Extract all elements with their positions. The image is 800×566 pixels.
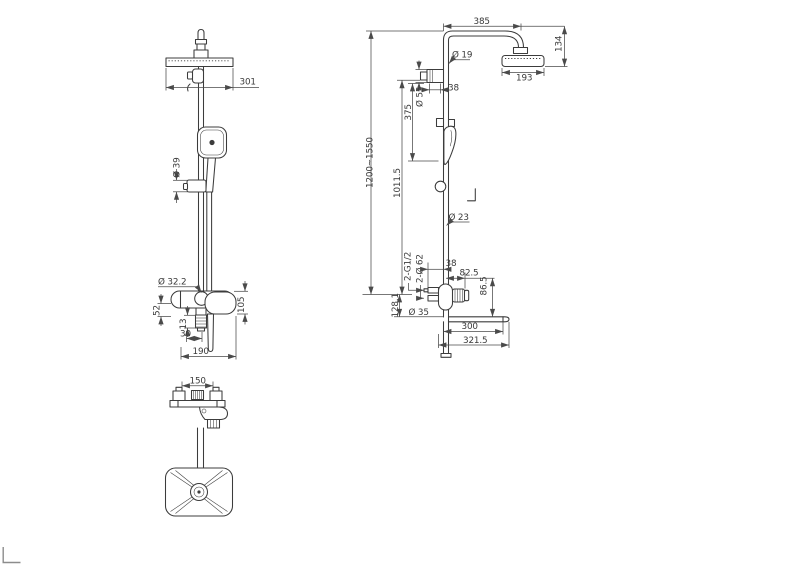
dim-label-385: 385 bbox=[474, 17, 490, 27]
dim-label-30: 30 bbox=[180, 330, 191, 340]
dim-label-13: 13 bbox=[179, 319, 189, 330]
dim-label-dia19: Ø 19 bbox=[452, 50, 472, 61]
dim-label-dia39: Ø 39 bbox=[172, 157, 183, 177]
corner-mark bbox=[468, 189, 476, 201]
dim-label-2dia62: 2-Ø 62 bbox=[415, 254, 426, 283]
dim-pipe-dia-19: Ø 19 bbox=[449, 50, 472, 64]
dim-label-150: 150 bbox=[190, 377, 207, 387]
overhead-shower-front bbox=[166, 58, 233, 67]
dim-label-321-5: 321.5 bbox=[463, 336, 487, 346]
top-view: 150 bbox=[166, 377, 233, 517]
dim-head-width-301: 301 bbox=[166, 68, 259, 91]
supply-stub bbox=[441, 322, 451, 358]
hand-shower-side bbox=[444, 126, 456, 164]
dim-spout-drop-86-5: 86.5 bbox=[480, 277, 493, 317]
dim-label-190: 190 bbox=[193, 347, 210, 357]
dim-label-128-1: 128.1 bbox=[391, 293, 401, 317]
base-plate-top bbox=[166, 468, 233, 516]
dim-head-drop-134: 134 bbox=[545, 26, 568, 66]
dim-label-105: 105 bbox=[237, 297, 247, 313]
dim-label-1200-1550: 1200~1550 bbox=[366, 137, 376, 188]
spout-top bbox=[200, 407, 228, 428]
frame-corner-mark bbox=[3, 547, 20, 563]
slider-bracket bbox=[184, 180, 207, 192]
dim-handle-dia-39: Ø 39 bbox=[172, 157, 189, 203]
inlet-nuts-top bbox=[173, 387, 222, 400]
slider-knob-side bbox=[435, 181, 446, 192]
dim-label-dia32-2: Ø 32.2 bbox=[158, 277, 186, 288]
dim-shelf-300: 300 bbox=[444, 322, 504, 335]
shower-pole bbox=[199, 67, 204, 292]
mixer-side bbox=[424, 284, 469, 310]
dim-diverter-offset-38: 38 bbox=[422, 84, 459, 94]
dim-arm-385: 385 bbox=[444, 17, 565, 31]
dim-label-dia35: Ø 35 bbox=[409, 307, 429, 318]
arm-diverter-side bbox=[421, 70, 444, 83]
dim-label-dia23: Ø 23 bbox=[449, 212, 469, 223]
technical-drawing-svg: 301 Ø 39 Ø 32.2 52 13 bbox=[0, 0, 800, 566]
side-view: 385 134 Ø 19 193 38 bbox=[363, 17, 568, 358]
dim-body-dia-32-2: Ø 32.2 bbox=[158, 277, 202, 293]
top-knob bbox=[194, 30, 208, 59]
dim-label-134: 134 bbox=[555, 35, 565, 52]
handshower-holder-side bbox=[437, 119, 455, 127]
dim-label-375: 375 bbox=[404, 104, 414, 120]
dim-label-38-upper: 38 bbox=[448, 84, 459, 94]
drawing-canvas: 301 Ø 39 Ø 32.2 52 13 bbox=[0, 0, 800, 566]
shelf-side bbox=[449, 317, 510, 322]
dim-head-width-193: 193 bbox=[502, 68, 544, 84]
riser-pipe bbox=[444, 31, 524, 317]
dim-label-300: 300 bbox=[462, 322, 479, 332]
overhead-shower-side bbox=[502, 48, 544, 67]
dim-supply-dia-35: Ø 35 bbox=[409, 307, 429, 318]
dim-label-52: 52 bbox=[153, 305, 163, 316]
dim-label-193: 193 bbox=[516, 74, 532, 84]
dim-label-1011-5: 1011.5 bbox=[393, 168, 403, 198]
dim-label-dia55: Ø 55 bbox=[415, 87, 426, 107]
dim-label-82-5: 82.5 bbox=[460, 268, 479, 278]
dim-label-301: 301 bbox=[240, 78, 256, 88]
front-view: 301 Ø 39 Ø 32.2 52 13 bbox=[153, 30, 260, 360]
mounting-plate-top bbox=[170, 401, 225, 408]
dim-slide-dia-23: Ø 23 bbox=[447, 212, 470, 226]
shower-hose bbox=[207, 192, 212, 291]
dim-label-86-5: 86.5 bbox=[480, 277, 490, 296]
dim-label-2g12: 2-G1/2 bbox=[404, 252, 414, 281]
dim-label-38-lower: 38 bbox=[446, 259, 457, 269]
dim-lower-offset-38: 38 bbox=[421, 259, 457, 287]
dim-body-height-52: 52 bbox=[153, 294, 172, 326]
